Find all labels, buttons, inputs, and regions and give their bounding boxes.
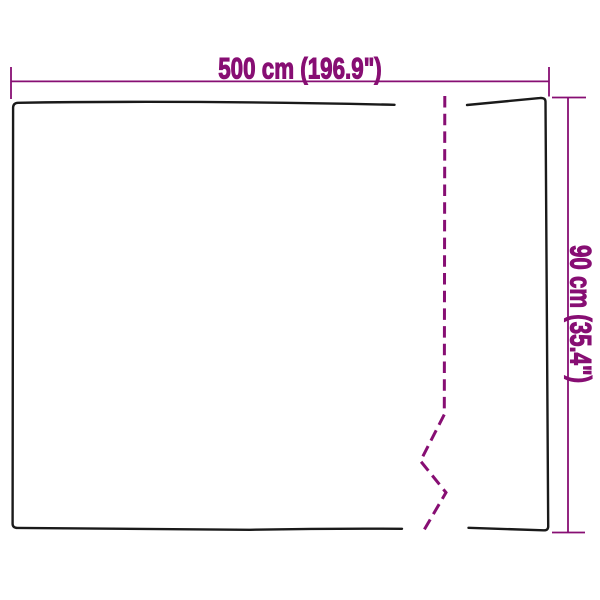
svg-text:500 cm (196.9"): 500 cm (196.9"): [218, 53, 382, 86]
svg-text:90 cm (35.4"): 90 cm (35.4"): [564, 245, 597, 383]
